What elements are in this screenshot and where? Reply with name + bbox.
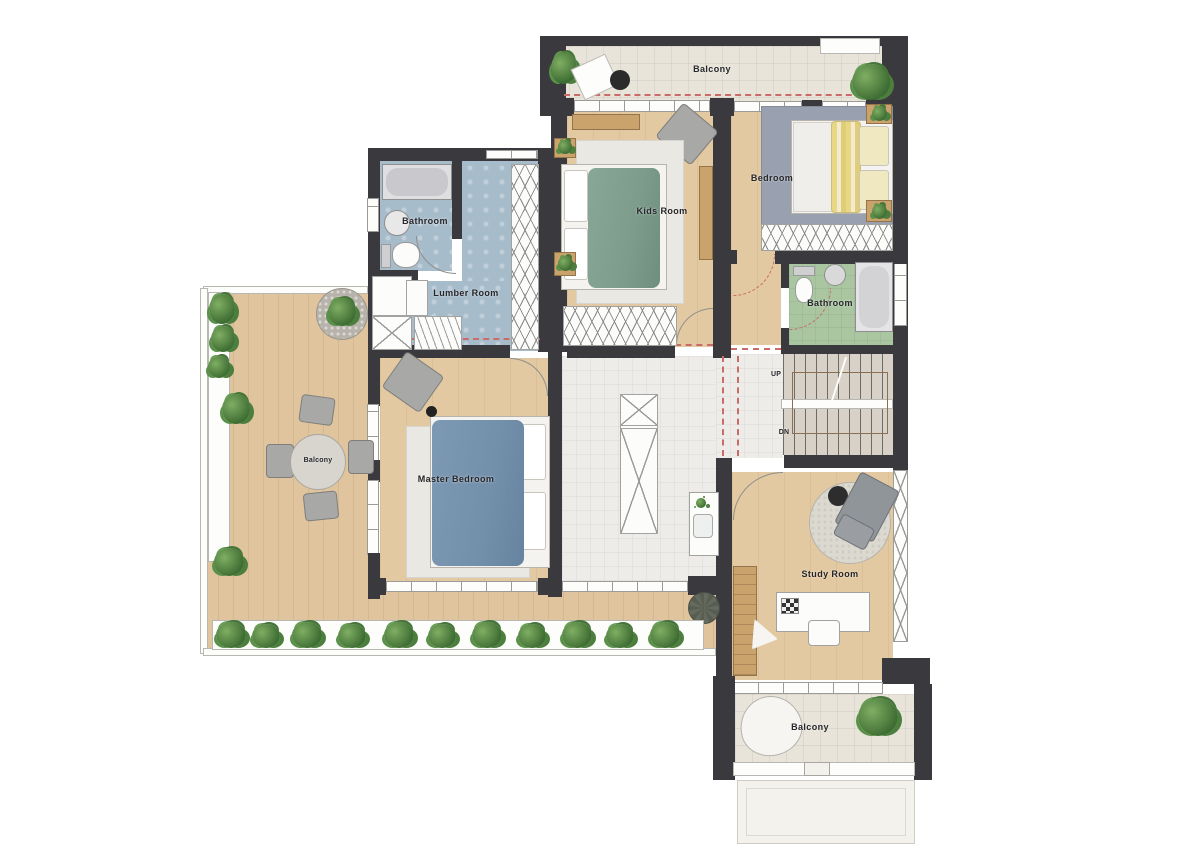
room-label-study-room: Study Room xyxy=(790,569,870,580)
wall-segment xyxy=(713,676,735,780)
dining-chair xyxy=(298,394,336,426)
window xyxy=(562,581,690,592)
kids-pillow xyxy=(564,170,588,222)
lumber-cabinet-x xyxy=(372,316,412,350)
stairs-up-label: UP xyxy=(762,371,790,379)
plant xyxy=(606,624,634,648)
toilet-tank xyxy=(793,266,815,276)
window xyxy=(367,198,379,232)
washbasin-sink xyxy=(693,514,713,538)
hall-wardrobe-top xyxy=(620,394,658,426)
kids-blanket xyxy=(588,168,660,288)
wall-segment xyxy=(548,345,562,597)
master-blanket xyxy=(432,420,524,566)
window xyxy=(894,262,907,326)
lumber-closet xyxy=(511,164,539,350)
lumber-cabinet xyxy=(406,280,428,316)
room-label-bathroom-right: Bathroom xyxy=(794,298,866,309)
desk-chair xyxy=(808,620,840,646)
plant xyxy=(209,294,235,324)
desk-chessboard xyxy=(781,598,799,614)
threshold-dashed xyxy=(564,94,882,96)
plant xyxy=(650,622,680,648)
plant xyxy=(518,624,546,648)
kids-closet xyxy=(563,306,677,346)
window xyxy=(733,682,883,694)
room-label-kids-room: Kids Room xyxy=(622,206,702,217)
wall-segment xyxy=(882,658,930,684)
plant xyxy=(208,356,230,378)
bathtub-inner xyxy=(386,168,448,196)
opening-dashed xyxy=(737,356,739,456)
floor-plan: Balcony Kids Room Bedroom Bathroom Bathr… xyxy=(0,0,1184,864)
room-label-bedroom: Bedroom xyxy=(732,173,812,184)
kids-bench xyxy=(572,114,640,130)
wall-segment xyxy=(368,578,386,595)
plant xyxy=(872,106,887,121)
stair-lobby-floor xyxy=(716,354,783,458)
terrace-rail-left xyxy=(200,288,208,654)
window xyxy=(486,150,538,159)
plant xyxy=(338,624,366,648)
plant xyxy=(214,548,244,576)
plant xyxy=(222,394,250,424)
toilet-bowl xyxy=(392,242,420,268)
stairs-down-label: DN xyxy=(770,429,798,437)
dining-chair xyxy=(348,440,374,474)
awning-inner xyxy=(746,788,906,836)
hall-wardrobe-bottom xyxy=(620,428,658,534)
plant xyxy=(211,326,235,352)
plant xyxy=(472,622,502,648)
bedroom-closet xyxy=(761,224,893,251)
wall-segment xyxy=(567,345,675,358)
wall-segment xyxy=(781,345,908,354)
wall-segment xyxy=(538,578,562,595)
plant xyxy=(558,256,573,271)
plant xyxy=(328,298,356,326)
plant xyxy=(562,622,592,648)
wall-segment xyxy=(784,455,908,468)
bathtub-inner xyxy=(859,266,889,328)
floor-lamp xyxy=(426,406,437,417)
shoe-cabinet xyxy=(414,316,462,350)
room-label-lumber-room: Lumber Room xyxy=(426,288,506,299)
window xyxy=(386,581,538,592)
room-label-terrace: Balcony xyxy=(288,457,348,465)
bedroom-blanket xyxy=(831,121,861,213)
wall-segment xyxy=(538,150,551,352)
plant xyxy=(558,140,572,154)
plant xyxy=(384,622,414,648)
plant xyxy=(292,622,322,648)
side-table xyxy=(610,70,630,90)
plant xyxy=(428,624,456,648)
plant xyxy=(216,622,246,648)
dining-chair xyxy=(303,490,340,521)
room-label-balcony-bottom: Balcony xyxy=(770,722,850,733)
plant xyxy=(252,624,280,648)
balcony-top-ledge xyxy=(820,38,880,54)
railing-post xyxy=(804,762,830,776)
wall-segment xyxy=(781,328,789,345)
room-label-bathroom-left: Bathroom xyxy=(389,216,461,227)
bedroom-sheet xyxy=(793,122,833,212)
wall-segment xyxy=(452,161,462,239)
wall-segment xyxy=(914,684,932,780)
threshold-dashed xyxy=(731,348,781,350)
bedroom-pillow xyxy=(859,126,889,166)
toilet-tank xyxy=(381,244,391,268)
opening-dashed xyxy=(722,356,724,456)
stairs-handrail-outline xyxy=(792,372,888,434)
wall-segment xyxy=(781,264,789,288)
room-label-balcony-top: Balcony xyxy=(672,64,752,75)
plant xyxy=(852,64,890,100)
study-bookshelf xyxy=(733,566,757,676)
sink xyxy=(824,264,846,286)
plant xyxy=(696,498,706,508)
plant xyxy=(872,204,887,219)
plant xyxy=(858,698,898,736)
wall-segment xyxy=(893,345,908,470)
window xyxy=(367,480,379,555)
wall-segment xyxy=(368,358,380,406)
room-label-master-bedroom: Master Bedroom xyxy=(408,474,504,485)
